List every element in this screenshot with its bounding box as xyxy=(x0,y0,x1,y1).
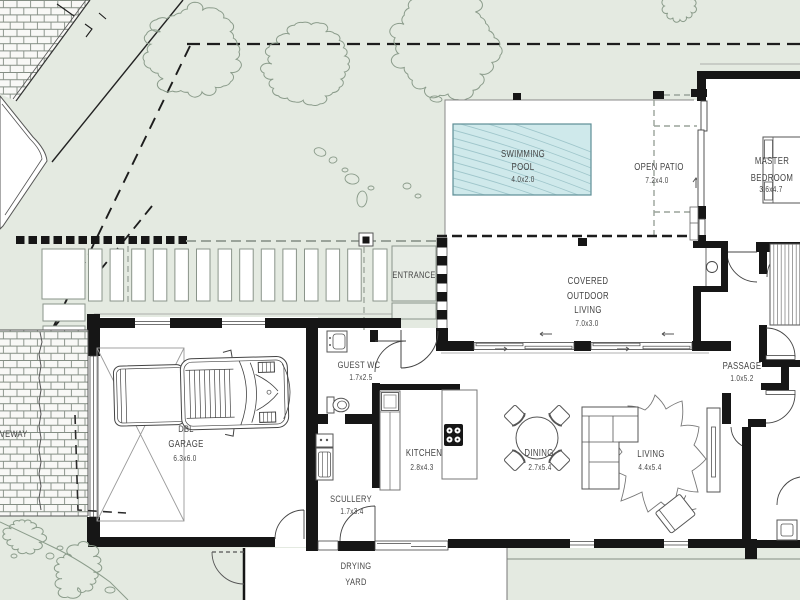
svg-text:LIVING: LIVING xyxy=(574,304,601,315)
svg-text:LIVING: LIVING xyxy=(637,448,664,459)
svg-text:6.3x6.0: 6.3x6.0 xyxy=(173,453,196,463)
svg-text:1.0x5.2: 1.0x5.2 xyxy=(730,373,753,383)
svg-text:4.0x2.0: 4.0x2.0 xyxy=(511,174,534,184)
svg-text:DINING: DINING xyxy=(524,447,553,458)
svg-text:3.6x4.7: 3.6x4.7 xyxy=(759,184,782,194)
svg-text:4.4x5.4: 4.4x5.4 xyxy=(638,462,661,472)
svg-text:COVERED: COVERED xyxy=(568,275,609,286)
svg-text:DRIVEWAY: DRIVEWAY xyxy=(0,428,28,439)
svg-text:ENTRANCE: ENTRANCE xyxy=(392,269,435,280)
svg-text:PASSAGE: PASSAGE xyxy=(723,360,762,371)
svg-text:2.7x5.4: 2.7x5.4 xyxy=(528,462,551,472)
svg-text:KITCHEN: KITCHEN xyxy=(406,447,442,458)
svg-text:1.7x2.5: 1.7x2.5 xyxy=(349,372,372,382)
svg-text:DBL: DBL xyxy=(178,423,193,434)
svg-text:DRYING: DRYING xyxy=(341,560,372,571)
svg-text:POOL: POOL xyxy=(512,161,535,172)
svg-text:OPEN PATIO: OPEN PATIO xyxy=(634,161,684,172)
svg-text:7.2x4.0: 7.2x4.0 xyxy=(645,175,668,185)
svg-text:SCULLERY: SCULLERY xyxy=(330,493,372,504)
svg-text:2.8x4.3: 2.8x4.3 xyxy=(410,462,433,472)
svg-text:OUTDOOR: OUTDOOR xyxy=(567,290,609,301)
svg-text:7.0x3.0: 7.0x3.0 xyxy=(575,318,598,328)
svg-text:BEDROOM: BEDROOM xyxy=(751,172,793,183)
svg-text:YARD: YARD xyxy=(345,576,366,587)
svg-text:1.7x3.4: 1.7x3.4 xyxy=(340,506,363,516)
svg-text:GARAGE: GARAGE xyxy=(168,438,203,449)
svg-text:SWIMMING: SWIMMING xyxy=(501,148,545,159)
svg-text:MASTER: MASTER xyxy=(755,155,789,166)
svg-text:GUEST WC: GUEST WC xyxy=(338,359,381,370)
